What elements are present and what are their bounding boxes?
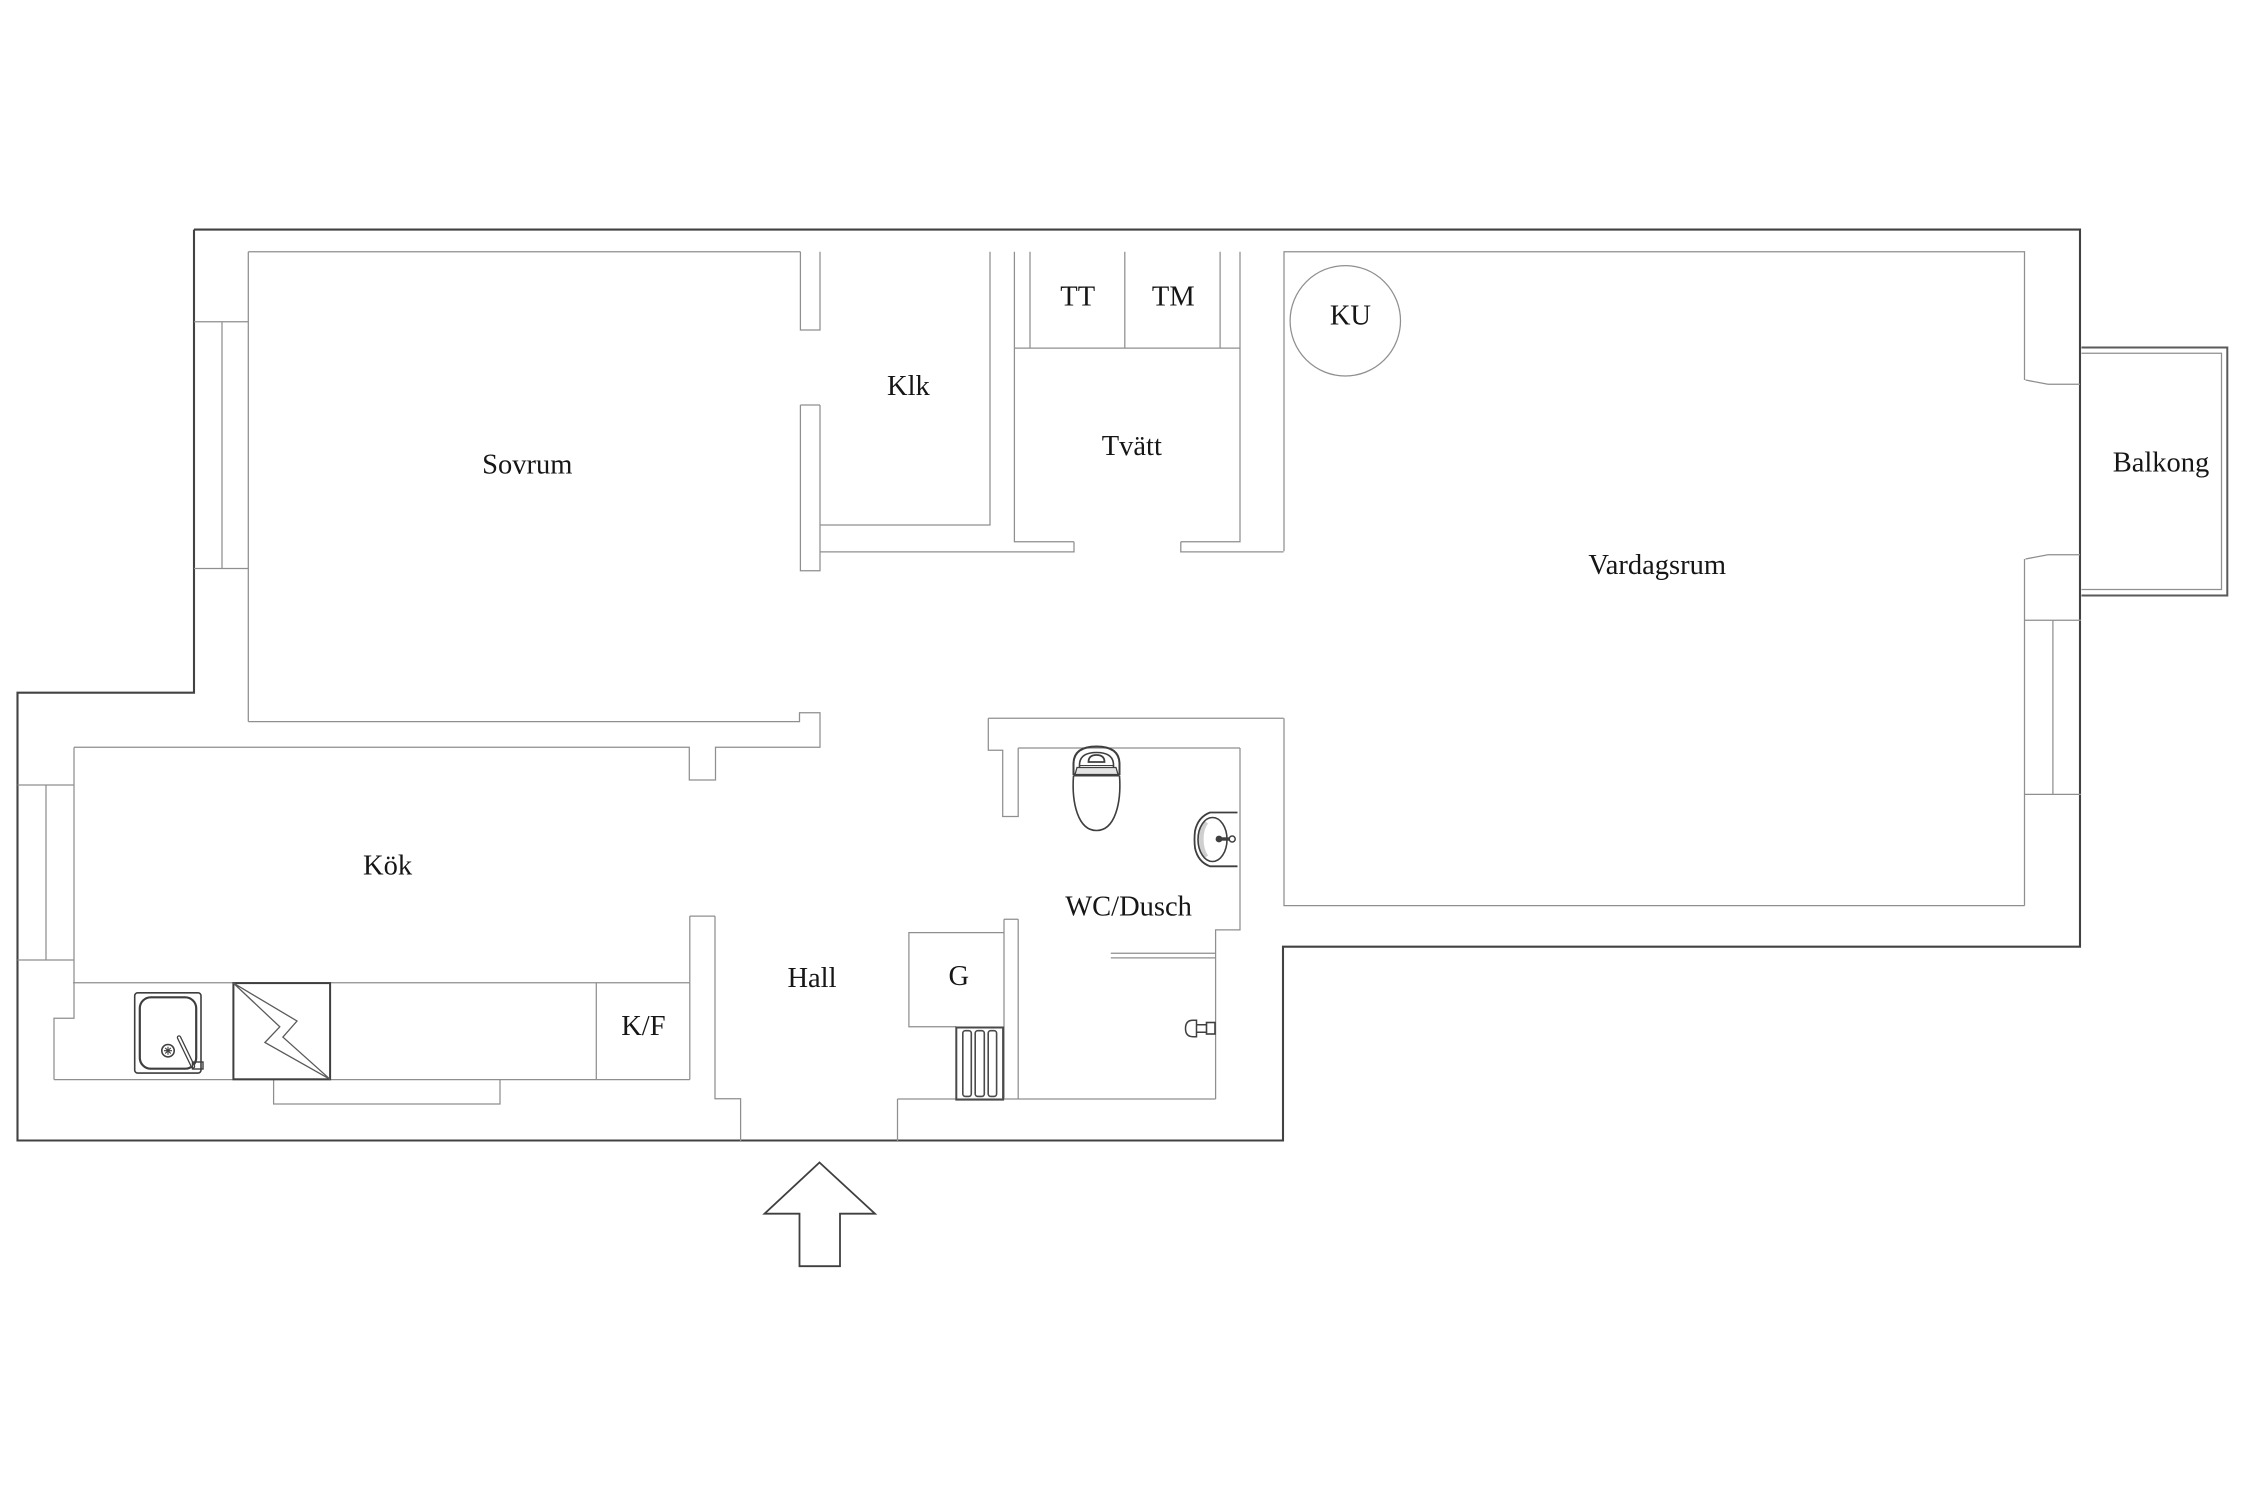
svg-text:TM: TM — [1152, 281, 1195, 312]
svg-text:K/F: K/F — [621, 1011, 665, 1042]
svg-text:TT: TT — [1060, 281, 1095, 312]
svg-text:Tvätt: Tvätt — [1102, 431, 1162, 462]
svg-text:Klk: Klk — [887, 371, 931, 402]
svg-text:KU: KU — [1330, 300, 1371, 331]
svg-text:Kök: Kök — [363, 851, 413, 882]
svg-text:Vardagsrum: Vardagsrum — [1588, 550, 1726, 581]
svg-text:Hall: Hall — [787, 963, 836, 994]
svg-text:G: G — [949, 961, 970, 992]
svg-text:WC/Dusch: WC/Dusch — [1065, 892, 1192, 923]
svg-text:Balkong: Balkong — [2113, 448, 2210, 479]
svg-text:Sovrum: Sovrum — [482, 450, 572, 481]
